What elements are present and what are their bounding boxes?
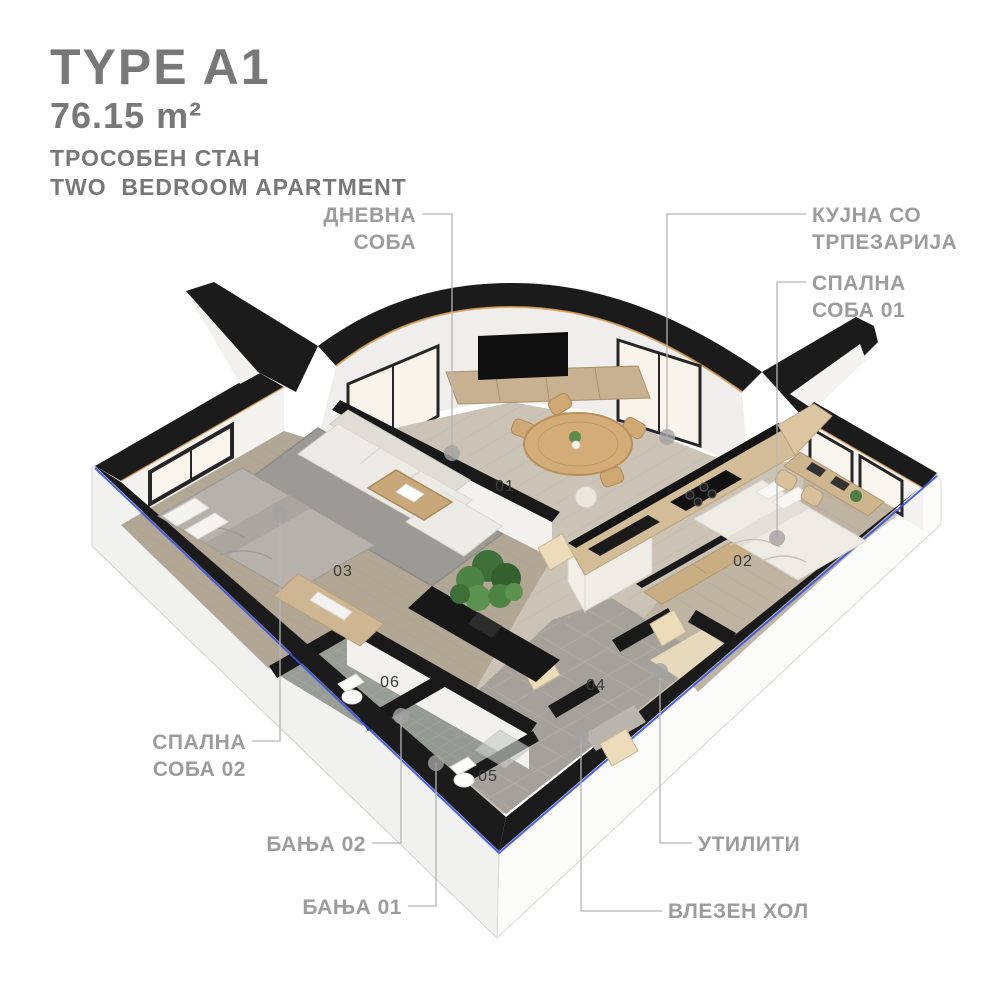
- toilet: [454, 773, 474, 787]
- room-number-02: 02: [733, 553, 753, 571]
- room-label-entry-hall: ВЛЕЗЕН ХОЛ: [668, 898, 809, 925]
- leader-dot-bathroom-02: [393, 708, 409, 724]
- tv-screen: [478, 332, 568, 380]
- room-label-bedroom-02: СПАЛНА СОБА 02: [152, 729, 246, 783]
- leader-dot-utility: [652, 663, 668, 679]
- subtitle-macedonian: ТРОСОБЕН СТАН: [50, 146, 407, 171]
- leader-dot-bathroom-01: [428, 755, 444, 771]
- leader-dot-bedroom-02: [272, 507, 288, 523]
- top-right-wall-wedge: [762, 317, 878, 414]
- room-label-kitchen-dining: КУЈНА СО ТРПЕЗАРИЈА: [812, 202, 957, 256]
- title-block: TYPE A1 76.15 m² ТРОСОБЕН СТАН TWO BEDRO…: [50, 42, 407, 201]
- room-label-utility: УТИЛИТИ: [698, 831, 800, 858]
- room-number-03: 03: [333, 563, 353, 581]
- subtitle-english: TWO BEDROOM APARTMENT: [50, 175, 407, 200]
- page-title: TYPE A1: [50, 42, 407, 92]
- leader-dot-bedroom-01: [769, 530, 785, 546]
- dining-stool: [575, 486, 597, 508]
- room-number-05: 05: [478, 768, 498, 786]
- room-label-bathroom-01: БАЊА 01: [302, 894, 402, 921]
- leader-dot-kitchen-dining: [659, 429, 675, 445]
- room-number-06: 06: [380, 674, 400, 692]
- room-label-living-room: ДНЕВНА СОБА: [323, 202, 416, 256]
- room-label-bedroom-01: СПАЛНА СОБА 01: [812, 270, 906, 324]
- desk-plant: [850, 490, 862, 502]
- floor-plan-page: TYPE A1 76.15 m² ТРОСОБЕН СТАН TWO BEDRO…: [0, 0, 1000, 1000]
- room-label-bathroom-02: БАЊА 02: [266, 831, 366, 858]
- top-left-wall-wedge: [186, 282, 318, 392]
- apartment-area: 76.15 m²: [50, 98, 407, 134]
- toilet: [342, 690, 362, 704]
- room-number-01: 01: [495, 478, 515, 496]
- leader-dot-living-room: [444, 445, 460, 461]
- room-number-04: 04: [586, 677, 606, 695]
- leader-dot-entry-hall: [573, 728, 589, 744]
